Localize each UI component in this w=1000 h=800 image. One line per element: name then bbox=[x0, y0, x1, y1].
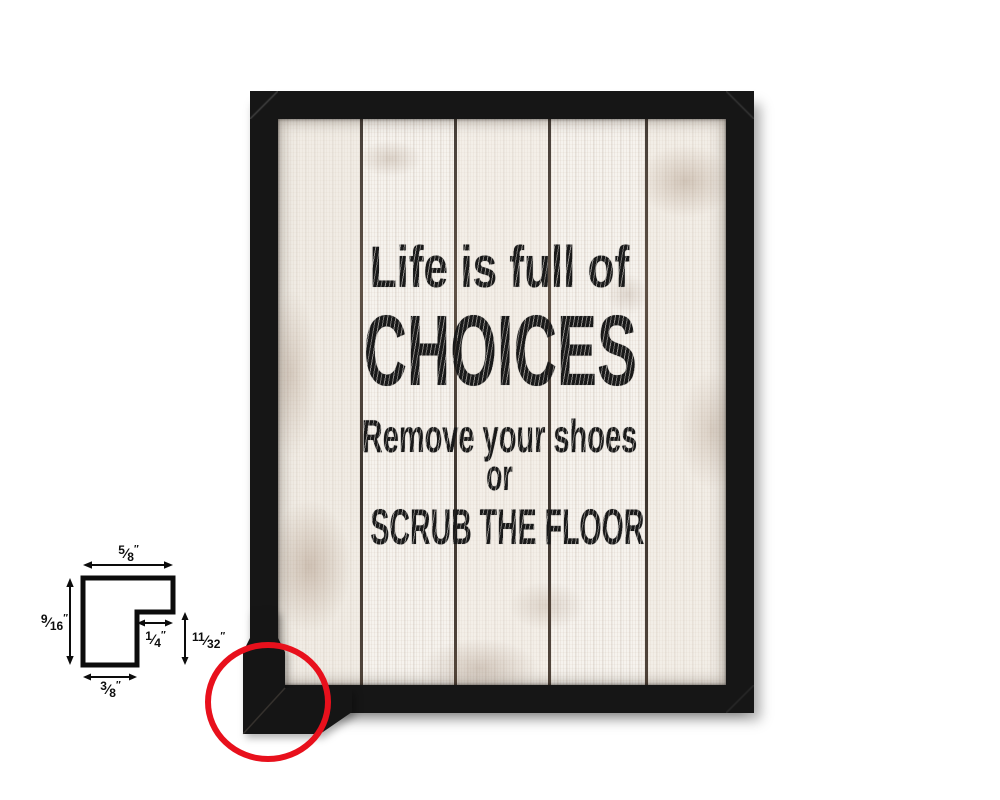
fraction-numerator: 9 bbox=[41, 612, 48, 626]
fraction-denominator: 8 bbox=[127, 550, 134, 564]
fraction-numerator: 1 bbox=[145, 629, 152, 643]
fraction-denominator: 8 bbox=[109, 686, 116, 700]
frame-miter-joint-top-right bbox=[726, 91, 754, 119]
fraction-denominator: 4 bbox=[154, 636, 161, 650]
inch-mark: ″ bbox=[161, 630, 165, 641]
dimension-label-rabbet-width: 1⁄4″ bbox=[125, 629, 185, 650]
dimension-label-bottom-width: 3⁄8″ bbox=[75, 679, 145, 700]
inner-frame-shadow bbox=[278, 119, 726, 685]
inch-mark: ″ bbox=[116, 680, 120, 691]
inch-mark: ″ bbox=[63, 613, 67, 624]
inch-mark: ″ bbox=[134, 544, 138, 555]
fraction-numerator: 3 bbox=[100, 679, 107, 693]
product-image: Life is full of CHOICES Remove your shoe… bbox=[0, 0, 1000, 800]
moulding-cross-section bbox=[83, 578, 173, 665]
dimension-label-rabbet-depth: 11⁄32″ bbox=[192, 630, 224, 651]
fraction-numerator: 5 bbox=[118, 543, 125, 557]
frame-profile-diagram: 5⁄8″ 9⁄16″ 1⁄4″ 11⁄32″ 3⁄8″ bbox=[25, 538, 240, 713]
fraction-numerator: 11 bbox=[192, 630, 205, 644]
dimension-arrow-left-height bbox=[66, 578, 73, 665]
dimension-label-top-width: 5⁄8″ bbox=[88, 543, 168, 564]
inch-mark: ″ bbox=[220, 631, 224, 642]
fraction-denominator: 16 bbox=[50, 619, 63, 633]
frame-miter-joint-top-left bbox=[250, 91, 278, 119]
whitewash-wood-panel: Life is full of CHOICES Remove your shoe… bbox=[278, 119, 726, 685]
dimension-arrow-rabbet-width bbox=[137, 620, 173, 627]
fraction-denominator: 32 bbox=[207, 637, 220, 651]
frame-miter-joint-bottom-right bbox=[726, 685, 754, 713]
dimension-label-left-height: 9⁄16″ bbox=[25, 612, 67, 633]
